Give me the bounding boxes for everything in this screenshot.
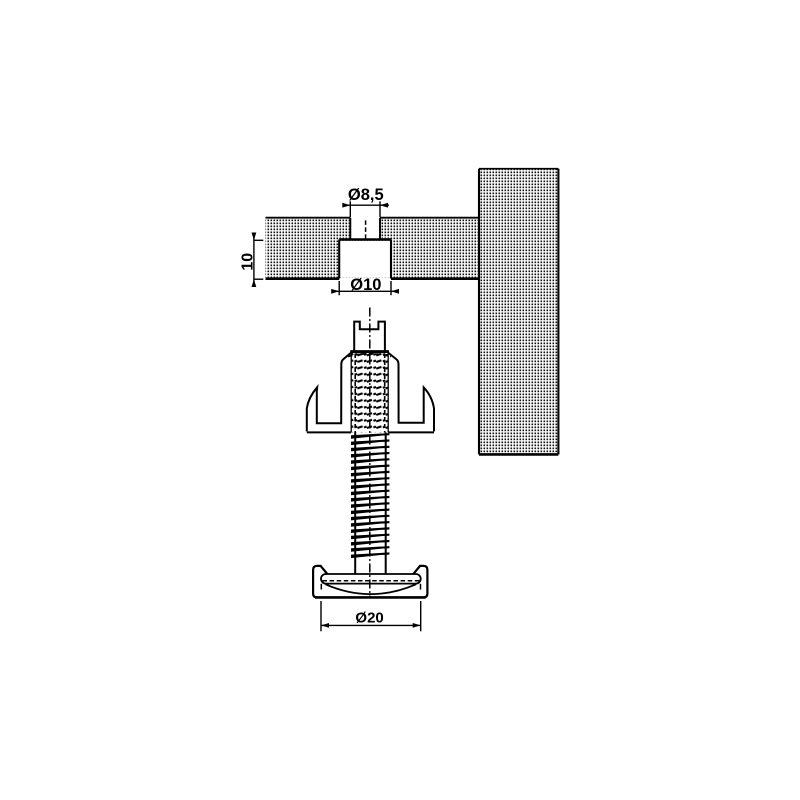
svg-text:Ø10: Ø10: [350, 276, 381, 294]
svg-text:Ø8,5: Ø8,5: [348, 186, 384, 204]
svg-text:Ø20: Ø20: [355, 609, 383, 626]
svg-text:10: 10: [239, 253, 256, 271]
